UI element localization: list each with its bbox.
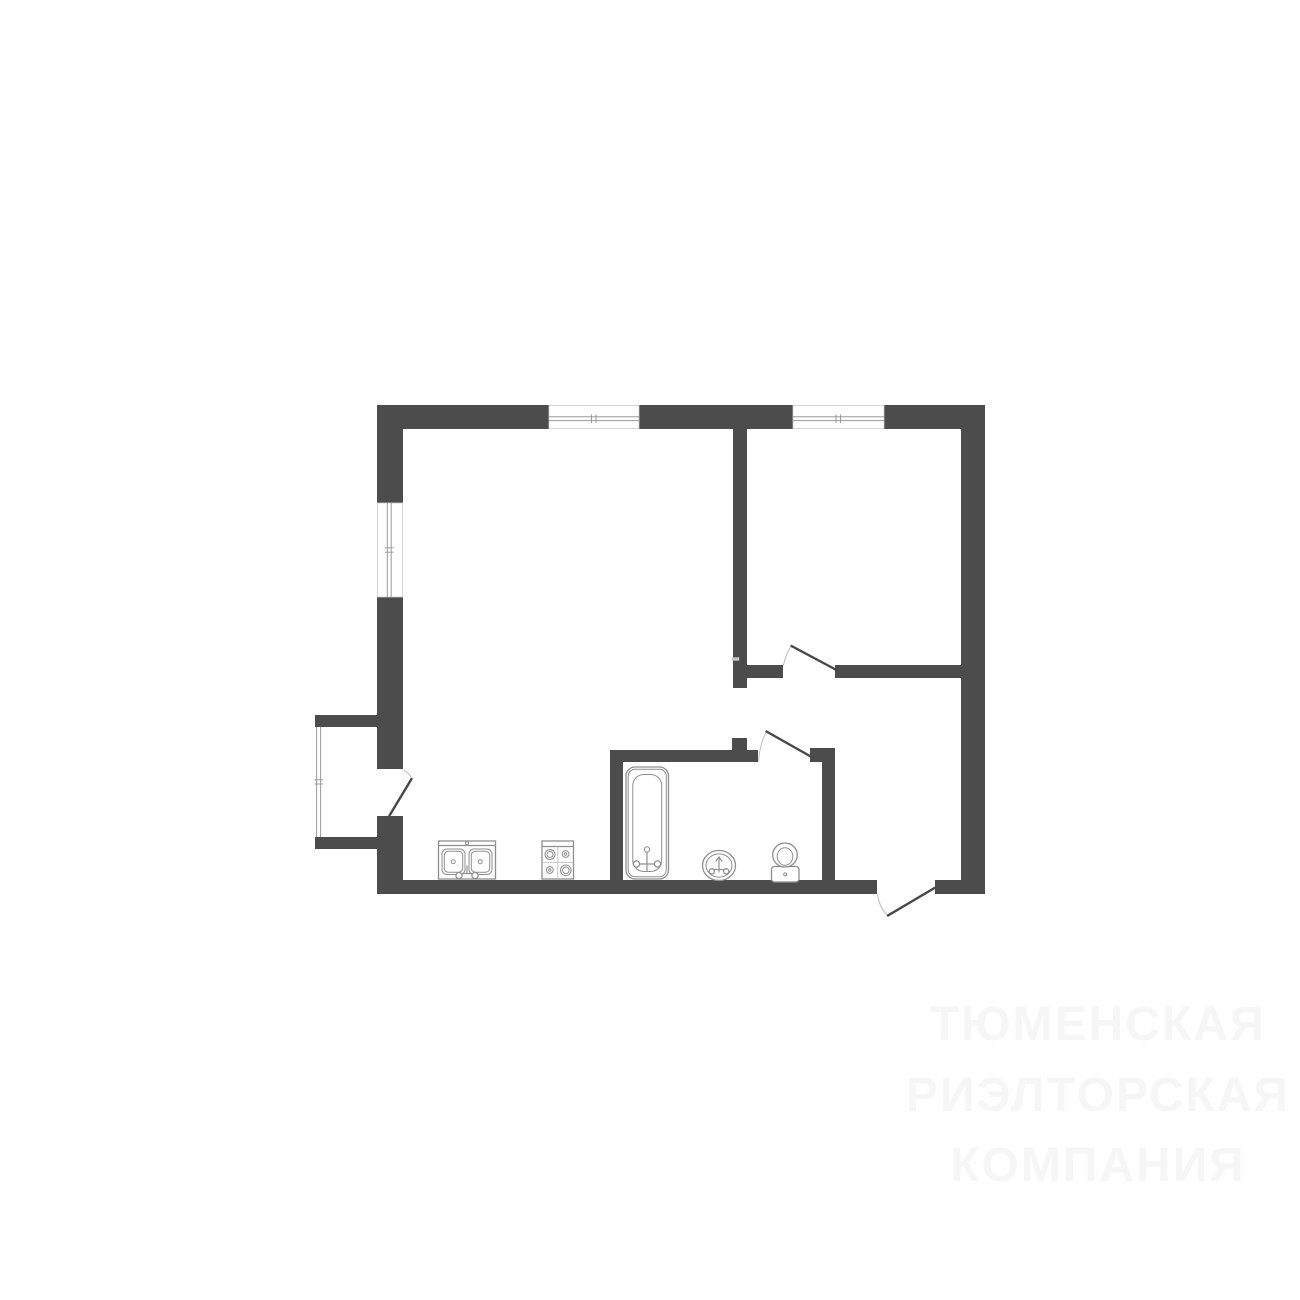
wall-top-middle — [639, 405, 793, 429]
wall-bedroom-stub — [747, 665, 783, 678]
wall-notch — [732, 657, 740, 660]
wall-bathroom-left — [610, 750, 623, 880]
bathtub-icon — [626, 767, 669, 879]
bedroom-door-icon — [784, 646, 837, 670]
wall-bottom-main — [377, 880, 877, 894]
wall-bathroom-top — [610, 750, 758, 762]
wall-bathroom-pier — [732, 738, 747, 750]
wall-balcony-top — [315, 715, 382, 727]
stove-icon — [542, 841, 574, 879]
window-top-right-icon — [793, 406, 884, 429]
watermark-line-2: РИЭЛТОРСКАЯ — [878, 1061, 1300, 1132]
wall-interior-vertical — [733, 429, 747, 688]
window-top-left-icon — [549, 406, 639, 429]
wall-right — [961, 405, 985, 894]
wall-left-middle — [377, 597, 403, 769]
entrance-door-icon — [878, 888, 935, 916]
wall-bedroom-hall — [835, 665, 961, 678]
wall-left-upper — [377, 405, 403, 503]
wall-bottom-right — [935, 880, 985, 894]
wall-bathroom-right — [822, 762, 835, 880]
window-balcony-icon — [315, 727, 324, 837]
balcony-door-icon — [390, 771, 412, 816]
bathroom-sink-icon — [703, 851, 736, 881]
wall-top-left — [378, 405, 549, 429]
watermark-line-1: ТЮМЕНСКАЯ — [878, 990, 1300, 1061]
realtor-watermark: ТЮМЕНСКАЯ РИЭЛТОРСКАЯ КОМПАНИЯ — [878, 990, 1300, 1202]
wall-balcony-bottom — [315, 837, 382, 849]
toilet-icon — [772, 843, 800, 882]
window-left-icon — [378, 503, 403, 597]
wall-bathroom-right-stub — [810, 748, 835, 762]
bathroom-door-icon — [759, 732, 813, 762]
watermark-line-3: КОМПАНИЯ — [878, 1131, 1300, 1202]
kitchen-sink-icon — [439, 841, 496, 879]
